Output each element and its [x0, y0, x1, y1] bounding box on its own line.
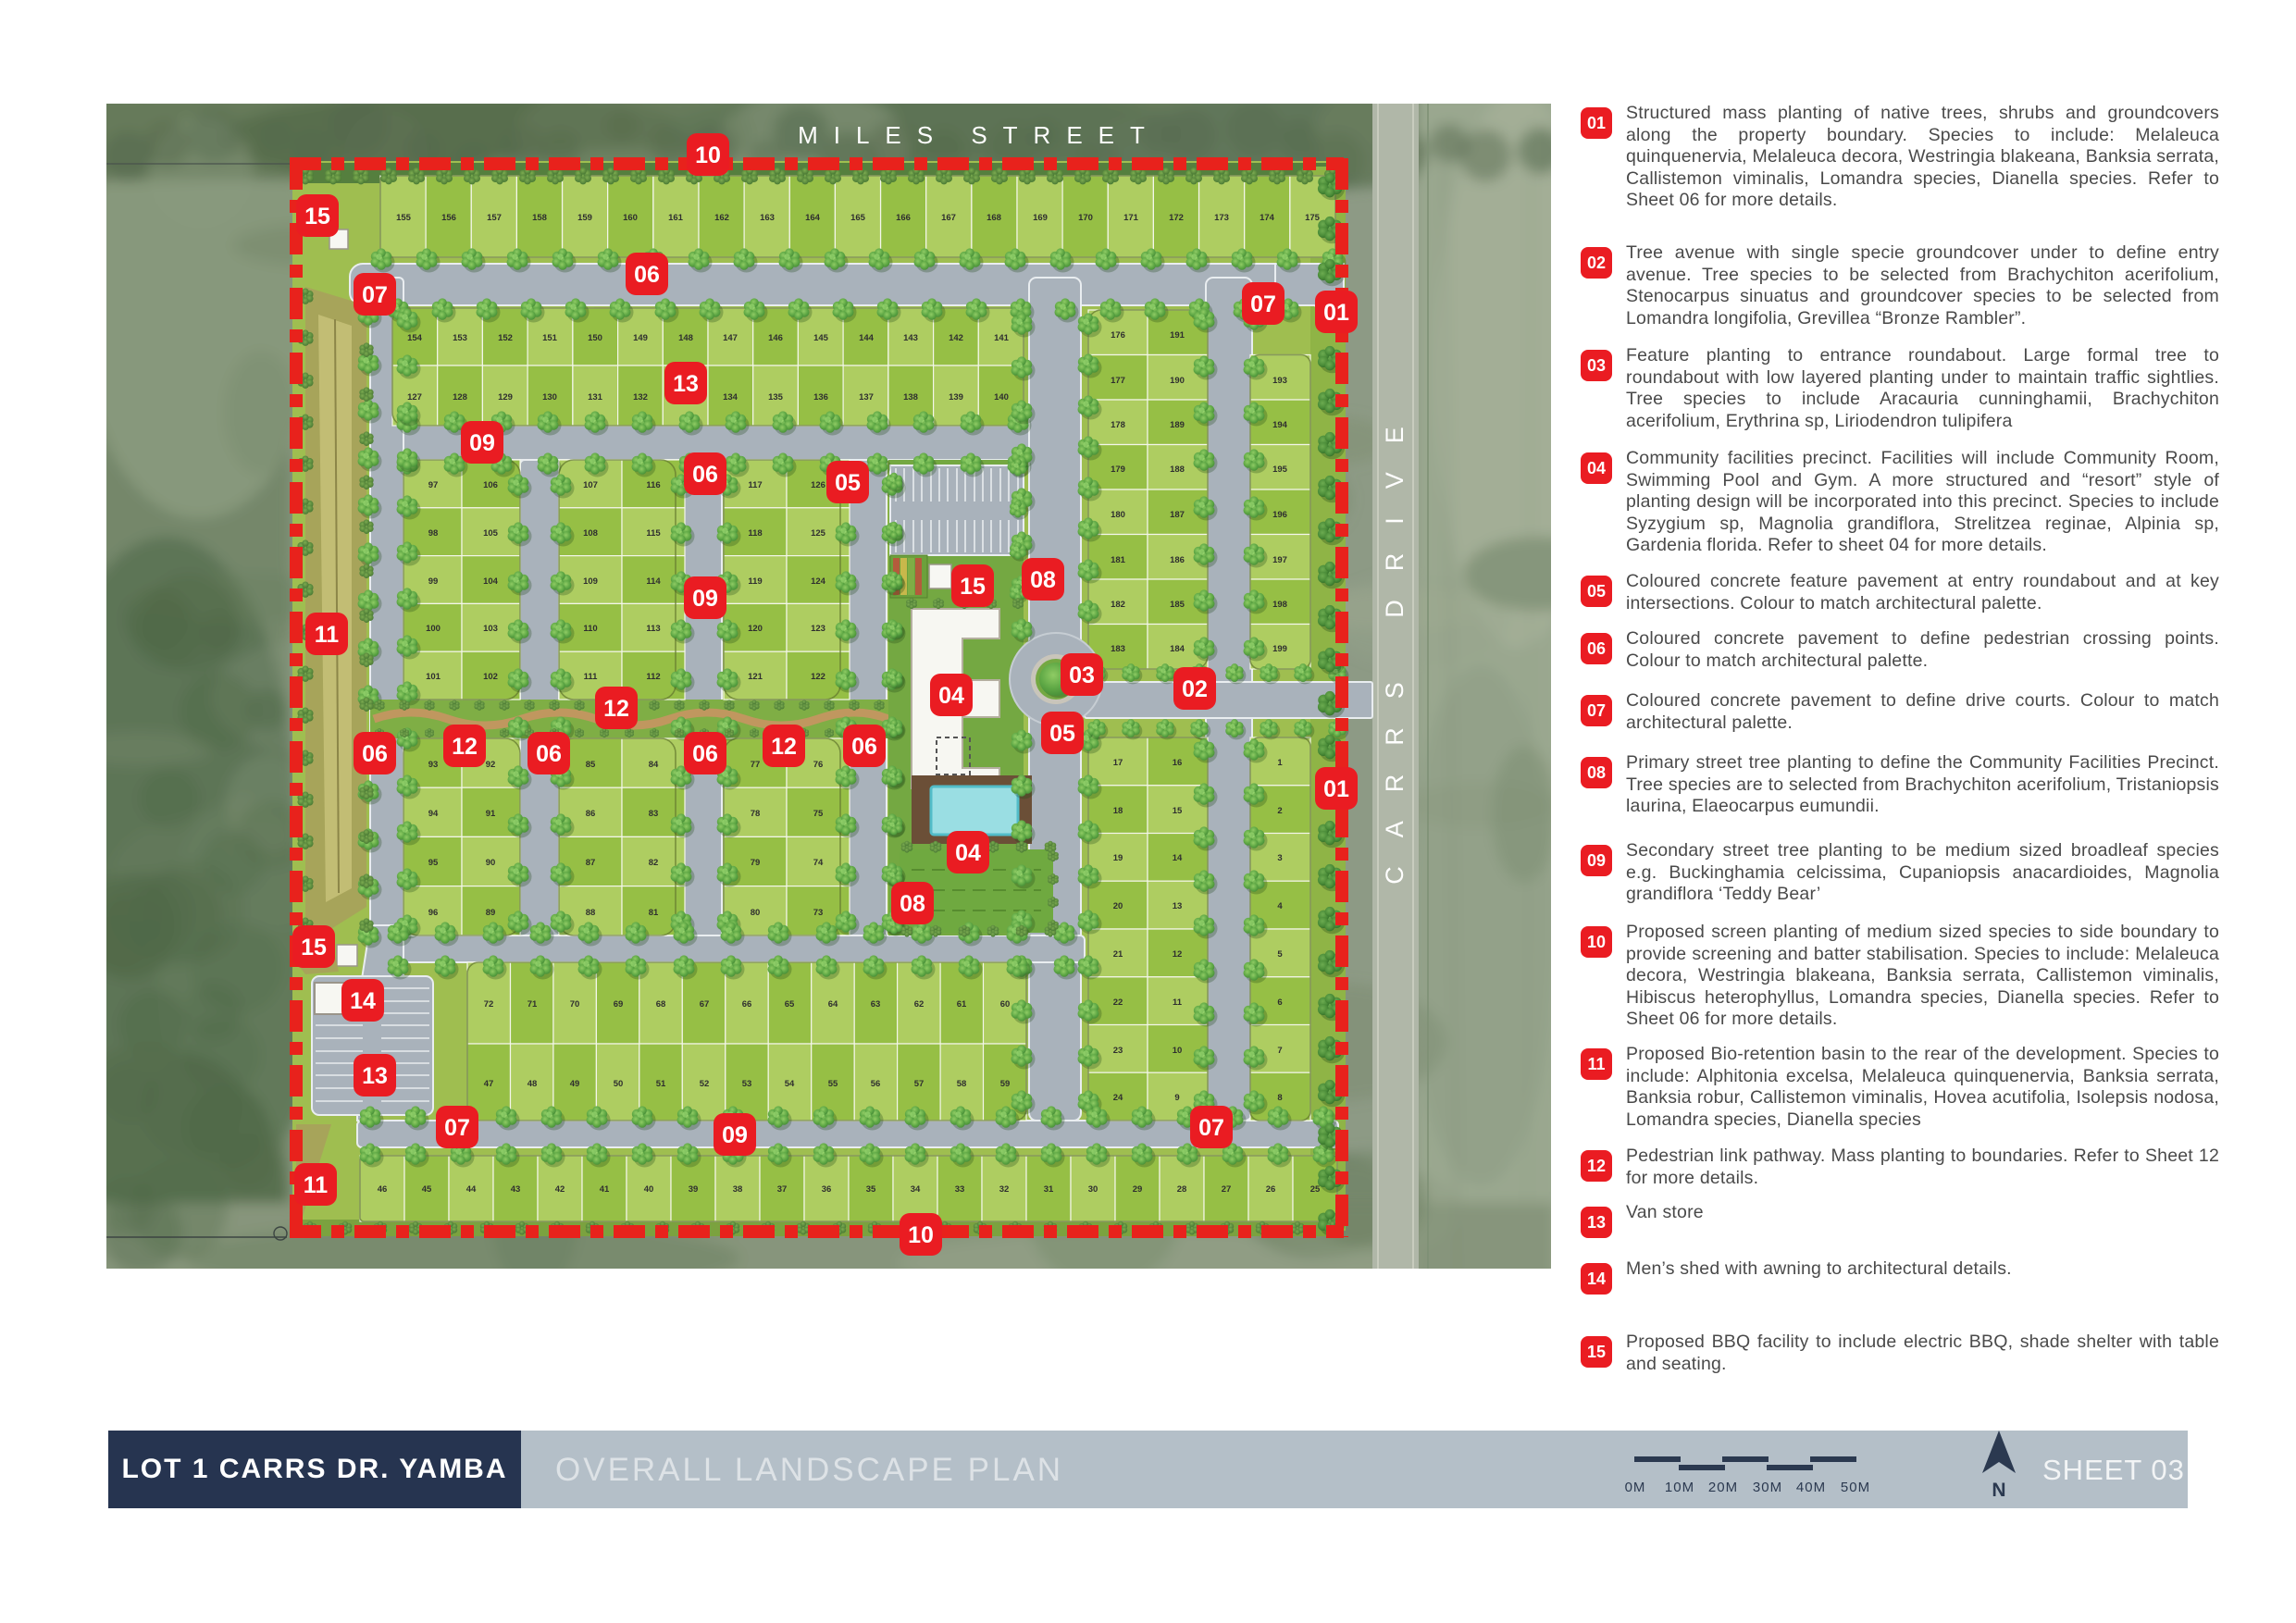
- svg-text:144: 144: [859, 333, 875, 343]
- svg-text:38: 38: [733, 1184, 743, 1195]
- svg-text:12: 12: [603, 696, 629, 722]
- svg-text:15: 15: [960, 574, 986, 600]
- svg-text:10: 10: [1173, 1046, 1183, 1056]
- svg-text:104: 104: [483, 576, 499, 587]
- svg-text:176: 176: [1111, 330, 1125, 341]
- svg-text:125: 125: [811, 528, 826, 539]
- svg-text:138: 138: [903, 392, 918, 403]
- svg-text:01: 01: [1323, 300, 1349, 326]
- svg-text:18: 18: [1113, 806, 1123, 816]
- svg-text:29: 29: [1133, 1184, 1143, 1195]
- svg-text:89: 89: [486, 908, 496, 918]
- svg-text:120: 120: [748, 624, 763, 634]
- svg-text:5: 5: [1277, 949, 1283, 960]
- svg-text:149: 149: [633, 333, 648, 343]
- svg-text:101: 101: [426, 672, 441, 682]
- svg-text:145: 145: [813, 333, 829, 343]
- svg-text:49: 49: [570, 1079, 580, 1089]
- svg-text:168: 168: [987, 213, 1001, 223]
- svg-text:80: 80: [751, 908, 761, 918]
- svg-text:162: 162: [714, 213, 729, 223]
- svg-text:12: 12: [1173, 949, 1183, 960]
- svg-text:166: 166: [896, 213, 911, 223]
- svg-text:51: 51: [656, 1079, 666, 1089]
- svg-text:11: 11: [1173, 997, 1183, 1008]
- svg-text:167: 167: [941, 213, 956, 223]
- svg-text:4: 4: [1277, 901, 1283, 911]
- svg-text:164: 164: [805, 213, 821, 223]
- svg-text:126: 126: [811, 480, 825, 490]
- svg-text:07: 07: [1198, 1115, 1224, 1141]
- svg-text:143: 143: [903, 333, 918, 343]
- svg-text:174: 174: [1260, 213, 1275, 223]
- svg-text:09: 09: [692, 586, 718, 612]
- svg-text:27: 27: [1222, 1184, 1232, 1195]
- svg-text:105: 105: [483, 528, 499, 539]
- svg-text:117: 117: [748, 480, 762, 490]
- svg-text:100: 100: [426, 624, 441, 634]
- svg-text:147: 147: [723, 333, 738, 343]
- svg-text:87: 87: [586, 858, 596, 868]
- svg-text:10: 10: [908, 1222, 934, 1248]
- svg-text:186: 186: [1170, 555, 1185, 565]
- svg-text:122: 122: [811, 672, 825, 682]
- svg-text:40M: 40M: [1796, 1480, 1826, 1495]
- svg-text:163: 163: [760, 213, 775, 223]
- svg-text:108: 108: [583, 528, 598, 539]
- svg-text:150: 150: [588, 333, 602, 343]
- svg-text:152: 152: [498, 333, 513, 343]
- svg-text:81: 81: [649, 908, 659, 918]
- svg-text:06: 06: [851, 734, 877, 760]
- svg-text:111: 111: [584, 672, 599, 682]
- svg-text:42: 42: [555, 1184, 565, 1195]
- svg-text:15: 15: [1173, 806, 1183, 816]
- svg-text:170: 170: [1078, 213, 1093, 223]
- svg-text:94: 94: [428, 809, 439, 819]
- svg-text:12: 12: [452, 734, 478, 760]
- svg-text:141: 141: [994, 333, 1010, 343]
- svg-text:30: 30: [1088, 1184, 1098, 1195]
- svg-text:25: 25: [1310, 1184, 1321, 1195]
- svg-text:146: 146: [768, 333, 783, 343]
- svg-text:60: 60: [1000, 999, 1011, 1010]
- svg-text:118: 118: [748, 528, 762, 539]
- svg-text:172: 172: [1169, 213, 1184, 223]
- svg-text:136: 136: [813, 392, 828, 403]
- svg-text:50: 50: [614, 1079, 624, 1089]
- svg-text:183: 183: [1111, 644, 1125, 654]
- svg-text:73: 73: [813, 908, 824, 918]
- svg-text:24: 24: [1113, 1093, 1123, 1103]
- svg-text:59: 59: [1000, 1079, 1011, 1089]
- svg-text:135: 135: [768, 392, 784, 403]
- svg-text:90: 90: [486, 858, 496, 868]
- svg-text:62: 62: [914, 999, 925, 1010]
- svg-text:06: 06: [692, 462, 718, 488]
- svg-text:197: 197: [1272, 555, 1287, 565]
- svg-text:123: 123: [811, 624, 825, 634]
- svg-text:37: 37: [777, 1184, 788, 1195]
- svg-text:08: 08: [900, 891, 925, 917]
- svg-text:93: 93: [428, 760, 439, 770]
- svg-text:161: 161: [668, 213, 684, 223]
- svg-text:153: 153: [453, 333, 467, 343]
- svg-text:137: 137: [859, 392, 874, 403]
- svg-text:17: 17: [1113, 758, 1123, 768]
- svg-text:78: 78: [751, 809, 761, 819]
- svg-text:110: 110: [583, 624, 597, 634]
- svg-text:02: 02: [1182, 676, 1208, 702]
- svg-text:44: 44: [466, 1184, 477, 1195]
- svg-text:92: 92: [486, 760, 496, 770]
- svg-text:95: 95: [428, 858, 439, 868]
- svg-text:8: 8: [1277, 1093, 1282, 1103]
- svg-text:12: 12: [771, 734, 797, 760]
- svg-text:08: 08: [1030, 567, 1056, 593]
- svg-text:14: 14: [350, 988, 376, 1014]
- svg-text:180: 180: [1111, 510, 1125, 520]
- svg-text:185: 185: [1170, 600, 1185, 610]
- svg-text:129: 129: [498, 392, 513, 403]
- svg-text:57: 57: [914, 1079, 925, 1089]
- svg-text:109: 109: [583, 576, 598, 587]
- svg-text:194: 194: [1272, 420, 1288, 430]
- svg-text:06: 06: [634, 262, 660, 288]
- svg-text:193: 193: [1272, 376, 1287, 386]
- svg-text:188: 188: [1170, 465, 1185, 475]
- svg-text:75: 75: [813, 809, 824, 819]
- svg-text:114: 114: [646, 576, 661, 587]
- svg-text:CARRS DRIVE: CARRS DRIVE: [1381, 398, 1409, 885]
- svg-text:77: 77: [751, 760, 761, 770]
- svg-text:06: 06: [692, 741, 718, 767]
- svg-text:86: 86: [586, 809, 596, 819]
- svg-text:10: 10: [695, 142, 721, 168]
- svg-text:76: 76: [813, 760, 824, 770]
- svg-text:31: 31: [1044, 1184, 1054, 1195]
- svg-text:83: 83: [649, 809, 659, 819]
- svg-text:10M: 10M: [1665, 1480, 1694, 1495]
- svg-text:28: 28: [1177, 1184, 1187, 1195]
- svg-text:05: 05: [835, 470, 861, 496]
- svg-text:6: 6: [1277, 997, 1282, 1008]
- svg-text:119: 119: [748, 576, 762, 587]
- svg-text:16: 16: [1173, 758, 1183, 768]
- svg-text:70: 70: [570, 999, 580, 1010]
- svg-text:184: 184: [1170, 644, 1185, 654]
- svg-text:195: 195: [1272, 465, 1288, 475]
- svg-text:88: 88: [586, 908, 596, 918]
- svg-text:07: 07: [444, 1115, 470, 1141]
- svg-text:19: 19: [1113, 853, 1123, 863]
- svg-text:96: 96: [428, 908, 439, 918]
- svg-text:50M: 50M: [1841, 1480, 1870, 1495]
- svg-text:15: 15: [301, 935, 327, 960]
- svg-text:142: 142: [949, 333, 963, 343]
- svg-text:67: 67: [700, 999, 710, 1010]
- svg-text:45: 45: [422, 1184, 432, 1195]
- svg-text:54: 54: [785, 1079, 795, 1089]
- svg-text:01: 01: [1323, 776, 1349, 802]
- svg-text:52: 52: [700, 1079, 710, 1089]
- svg-text:199: 199: [1272, 644, 1287, 654]
- svg-text:05: 05: [1049, 721, 1075, 747]
- svg-text:35: 35: [866, 1184, 876, 1195]
- svg-text:181: 181: [1111, 555, 1126, 565]
- svg-text:113: 113: [646, 624, 660, 634]
- svg-text:69: 69: [614, 999, 624, 1010]
- svg-text:171: 171: [1123, 213, 1139, 223]
- svg-text:121: 121: [748, 672, 763, 682]
- svg-text:3: 3: [1277, 853, 1282, 863]
- svg-text:97: 97: [428, 480, 439, 490]
- svg-text:1: 1: [1277, 758, 1283, 768]
- svg-text:79: 79: [751, 858, 761, 868]
- svg-text:84: 84: [649, 760, 659, 770]
- svg-text:MILES STREET: MILES STREET: [798, 121, 1160, 149]
- svg-text:63: 63: [871, 999, 881, 1010]
- svg-text:85: 85: [586, 760, 596, 770]
- svg-text:06: 06: [362, 741, 388, 767]
- svg-text:33: 33: [955, 1184, 965, 1195]
- svg-text:140: 140: [994, 392, 1009, 403]
- svg-text:13: 13: [362, 1063, 388, 1089]
- svg-text:102: 102: [483, 672, 498, 682]
- svg-text:154: 154: [407, 333, 423, 343]
- svg-text:9: 9: [1174, 1093, 1179, 1103]
- svg-text:40: 40: [644, 1184, 654, 1195]
- svg-text:148: 148: [678, 333, 693, 343]
- svg-text:09: 09: [469, 430, 495, 456]
- svg-text:06: 06: [536, 741, 562, 767]
- svg-text:179: 179: [1111, 465, 1125, 475]
- svg-text:47: 47: [484, 1079, 494, 1089]
- svg-text:07: 07: [362, 282, 388, 308]
- svg-text:21: 21: [1113, 949, 1123, 960]
- svg-text:56: 56: [871, 1079, 881, 1089]
- svg-text:116: 116: [646, 480, 660, 490]
- svg-text:112: 112: [646, 672, 660, 682]
- svg-text:41: 41: [600, 1184, 610, 1195]
- svg-text:04: 04: [955, 840, 981, 866]
- svg-text:91: 91: [486, 809, 496, 819]
- svg-text:09: 09: [722, 1122, 748, 1148]
- svg-text:159: 159: [577, 213, 592, 223]
- svg-text:48: 48: [527, 1079, 538, 1089]
- svg-text:61: 61: [957, 999, 967, 1010]
- svg-text:127: 127: [407, 392, 422, 403]
- svg-text:173: 173: [1214, 213, 1229, 223]
- svg-text:14: 14: [1173, 853, 1183, 863]
- svg-text:182: 182: [1111, 600, 1125, 610]
- svg-text:58: 58: [957, 1079, 967, 1089]
- svg-text:23: 23: [1113, 1046, 1123, 1056]
- svg-text:134: 134: [723, 392, 738, 403]
- svg-text:34: 34: [911, 1184, 921, 1195]
- svg-text:30M: 30M: [1753, 1480, 1782, 1495]
- svg-text:132: 132: [633, 392, 648, 403]
- svg-text:74: 74: [813, 858, 824, 868]
- svg-text:13: 13: [673, 371, 699, 397]
- svg-text:160: 160: [623, 213, 638, 223]
- svg-text:128: 128: [453, 392, 467, 403]
- svg-text:177: 177: [1111, 376, 1125, 386]
- svg-text:32: 32: [999, 1184, 1010, 1195]
- svg-text:53: 53: [742, 1079, 752, 1089]
- svg-text:2: 2: [1277, 806, 1282, 816]
- svg-text:7: 7: [1277, 1046, 1282, 1056]
- svg-text:131: 131: [588, 392, 603, 403]
- svg-text:20: 20: [1113, 901, 1123, 911]
- svg-text:0M: 0M: [1625, 1480, 1646, 1495]
- svg-text:124: 124: [811, 576, 826, 587]
- svg-text:46: 46: [378, 1184, 388, 1195]
- svg-text:198: 198: [1272, 600, 1287, 610]
- svg-text:165: 165: [850, 213, 866, 223]
- svg-text:65: 65: [785, 999, 795, 1010]
- svg-text:22: 22: [1113, 997, 1123, 1008]
- svg-text:N: N: [1992, 1480, 2005, 1501]
- svg-text:68: 68: [656, 999, 666, 1010]
- svg-text:187: 187: [1170, 510, 1185, 520]
- svg-text:82: 82: [649, 858, 659, 868]
- svg-text:13: 13: [1173, 901, 1183, 911]
- svg-text:72: 72: [484, 999, 494, 1010]
- svg-text:55: 55: [828, 1079, 838, 1089]
- svg-text:103: 103: [483, 624, 498, 634]
- svg-text:66: 66: [742, 999, 752, 1010]
- svg-text:99: 99: [428, 576, 439, 587]
- svg-text:43: 43: [511, 1184, 521, 1195]
- svg-text:04: 04: [938, 683, 964, 709]
- svg-text:64: 64: [828, 999, 838, 1010]
- svg-text:190: 190: [1170, 376, 1185, 386]
- svg-text:20M: 20M: [1708, 1480, 1738, 1495]
- svg-text:130: 130: [542, 392, 557, 403]
- svg-text:178: 178: [1111, 420, 1125, 430]
- svg-text:98: 98: [428, 528, 439, 539]
- svg-text:07: 07: [1250, 291, 1276, 317]
- svg-text:151: 151: [542, 333, 558, 343]
- svg-text:71: 71: [527, 999, 538, 1010]
- svg-text:26: 26: [1266, 1184, 1276, 1195]
- svg-text:175: 175: [1305, 213, 1321, 223]
- svg-text:169: 169: [1033, 213, 1048, 223]
- svg-text:107: 107: [583, 480, 598, 490]
- svg-text:196: 196: [1272, 510, 1287, 520]
- svg-text:03: 03: [1069, 663, 1095, 688]
- svg-text:36: 36: [822, 1184, 832, 1195]
- svg-text:115: 115: [646, 528, 661, 539]
- svg-text:11: 11: [315, 622, 340, 648]
- svg-text:155: 155: [396, 213, 412, 223]
- svg-text:189: 189: [1170, 420, 1185, 430]
- svg-text:106: 106: [483, 480, 498, 490]
- svg-text:139: 139: [949, 392, 963, 403]
- svg-text:11: 11: [304, 1172, 329, 1198]
- svg-text:39: 39: [689, 1184, 699, 1195]
- svg-text:191: 191: [1170, 330, 1185, 341]
- svg-text:156: 156: [441, 213, 456, 223]
- svg-text:158: 158: [532, 213, 547, 223]
- svg-text:157: 157: [487, 213, 502, 223]
- svg-text:15: 15: [304, 204, 330, 229]
